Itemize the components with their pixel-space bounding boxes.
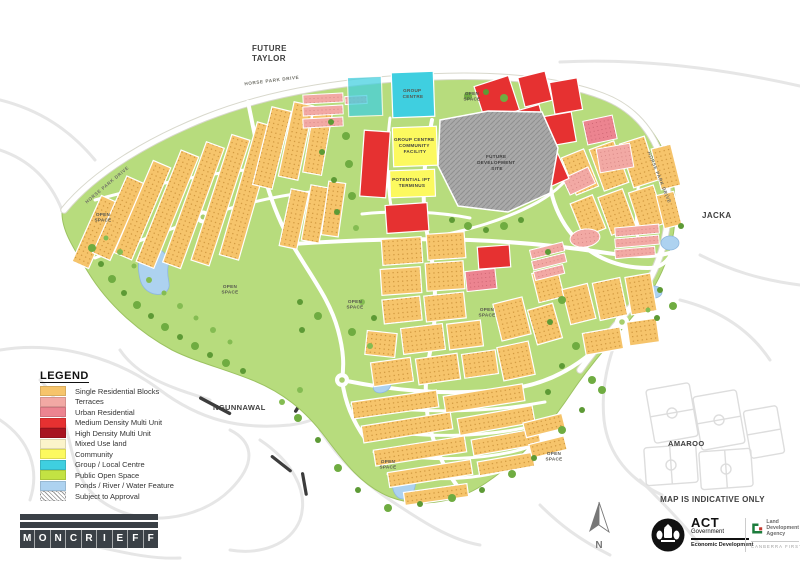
legend-swatch bbox=[40, 407, 66, 417]
group-centre-label: GROUP CENTRE bbox=[403, 88, 424, 99]
legend-item: Urban Residential bbox=[40, 408, 210, 417]
lda-tagline: CANBERRA FIRST bbox=[751, 541, 799, 549]
region-label-jacka: JACKA bbox=[702, 211, 732, 221]
horse-park-drive-label: HORSE PARK DRIVE bbox=[244, 75, 299, 87]
open-space-label: OPENSPACE bbox=[222, 284, 239, 295]
open-space-label: OPENSPACE bbox=[464, 91, 481, 102]
legend-item: Group / Local Centre bbox=[40, 461, 210, 470]
map-disclaimer: MAP IS INDICATIVE ONLY bbox=[630, 495, 795, 504]
legend-swatch bbox=[40, 439, 66, 449]
legend-item: Medium Density Multi Unit bbox=[40, 419, 210, 428]
legend-swatch bbox=[40, 397, 66, 407]
act-logo-division: Economic Development bbox=[691, 542, 753, 548]
open-space-label: OPENSPACE bbox=[546, 451, 563, 462]
legend-item: Mixed Use land bbox=[40, 440, 210, 449]
legend-swatch bbox=[40, 460, 66, 470]
legend-item: Single Residential Blocks bbox=[40, 387, 210, 396]
lda-line3: Agency bbox=[766, 531, 799, 537]
open-space-label: OPENSPACE bbox=[95, 212, 112, 223]
legend-swatch bbox=[40, 470, 66, 480]
legend-item: Ponds / River / Water Feature bbox=[40, 482, 210, 491]
moncrieff-logo: MO NC RI EF F bbox=[20, 514, 158, 548]
compass-north-label: N bbox=[595, 540, 602, 551]
legend-swatch bbox=[40, 418, 66, 428]
legend-swatch bbox=[40, 428, 66, 438]
legend-swatch bbox=[40, 386, 66, 396]
lda-icon bbox=[751, 519, 763, 538]
legend-swatch bbox=[40, 449, 66, 459]
legend-swatch-hatched bbox=[40, 491, 66, 501]
compass-north-arrow: N bbox=[584, 500, 614, 554]
act-logo-acronym: ACT bbox=[691, 517, 753, 529]
legend-item: Public Open Space bbox=[40, 471, 210, 480]
legend-item: High Density Multi Unit bbox=[40, 429, 210, 438]
land-development-agency-logo: Land Development Agency CANBERRA FIRST bbox=[751, 519, 799, 549]
moncrieff-logo-letters: MO NC RI EF F bbox=[20, 530, 158, 548]
legend-item: Subject to Approval bbox=[40, 492, 210, 501]
legend-title: LEGEND bbox=[40, 370, 89, 383]
moncrieff-estate-map-page: GROUP CENTRE GROUP CENTRE COMMUNITY FACI… bbox=[0, 0, 800, 566]
open-space-label: OPENSPACE bbox=[347, 299, 364, 310]
region-label-future-taylor: FUTURE TAYLOR bbox=[252, 44, 287, 64]
logo-separator bbox=[745, 518, 746, 552]
legend-item: Community bbox=[40, 450, 210, 459]
legend-item: Terraces bbox=[40, 398, 210, 407]
act-coat-of-arms-icon bbox=[650, 517, 686, 553]
region-label-ngunnawal: NGUNNAWAL bbox=[213, 403, 266, 413]
act-logo-government: Government bbox=[691, 529, 753, 536]
act-government-logo: ACT Government Economic Development bbox=[650, 517, 753, 553]
region-label-amaroo: AMAROO bbox=[668, 439, 705, 449]
legend-swatch bbox=[40, 481, 66, 491]
amaroo-playing-fields bbox=[644, 383, 785, 490]
legend: LEGEND Single Residential Blocks Terrace… bbox=[40, 366, 210, 503]
open-space-label: OPENSPACE bbox=[479, 307, 496, 318]
open-space-label: OPENSPACE bbox=[380, 459, 397, 470]
